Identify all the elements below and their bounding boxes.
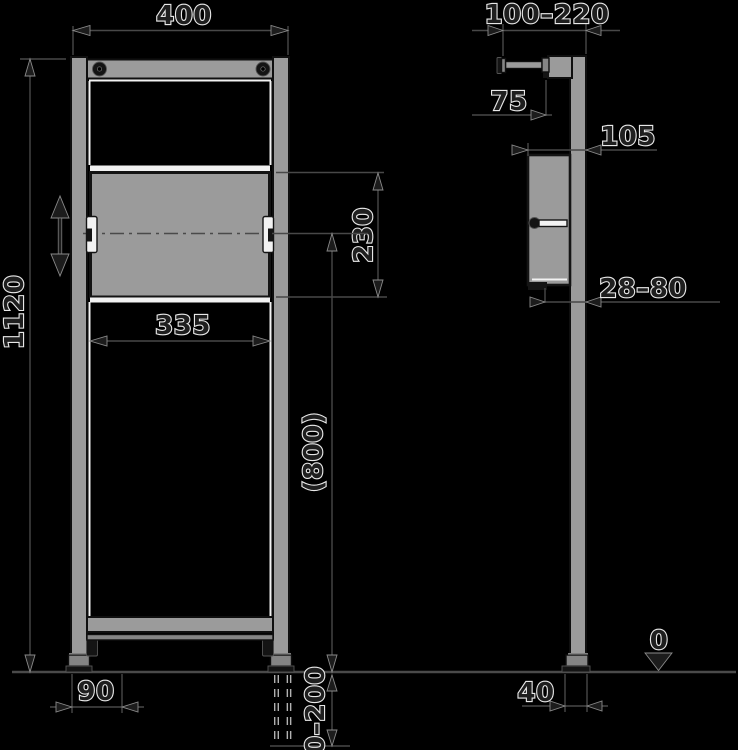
panel-top-highlight	[90, 166, 270, 172]
right-foot	[271, 655, 292, 666]
dim-label-floor-level: 0	[650, 626, 669, 656]
anchor-disc-inner	[502, 59, 506, 73]
top-crossbar	[87, 60, 273, 79]
panel-bottom-highlight	[90, 298, 270, 303]
arrowhead	[587, 701, 602, 711]
side-foot-pad	[562, 666, 590, 672]
dim-label-foot-depth: 40	[517, 678, 554, 708]
arrowhead	[271, 26, 288, 36]
right-screw-center	[261, 67, 265, 71]
front-view	[51, 57, 294, 742]
left-rail	[71, 57, 87, 654]
dim-label-panel-height: 230	[349, 207, 379, 263]
leg-extension-dashes	[277, 675, 290, 742]
arrowhead	[90, 336, 107, 346]
dimension-panel-width: 335	[90, 311, 270, 346]
arrowhead	[373, 280, 383, 297]
anchor-rod	[506, 62, 543, 69]
floor-level-marker-icon	[645, 653, 672, 671]
dimension-wall-distance: 100–220	[472, 0, 620, 56]
arrowhead	[25, 655, 35, 672]
right-leg-lock-knob	[263, 639, 274, 656]
dim-label-frame-height: 1120	[0, 275, 30, 349]
dim-label-panel-width: 335	[155, 311, 211, 341]
arrowhead	[253, 336, 270, 346]
height-adjust-arrow-icon	[51, 196, 69, 276]
side-foot	[566, 655, 588, 666]
dimension-foot-span: 90	[50, 674, 144, 713]
technical-drawing-canvas: 400 1120 335 230 (800) 90	[0, 0, 738, 750]
right-foot-pad	[268, 666, 294, 672]
bottom-crossbar	[87, 617, 273, 632]
anchor-collar	[542, 58, 549, 72]
dim-label-rear-gap: 28–80	[599, 274, 687, 304]
side-fixing-slot	[539, 220, 567, 227]
side-module-box-bottom-piece	[528, 282, 547, 290]
dim-label-wall-distance: 100–220	[484, 0, 609, 30]
side-top-crossbar	[548, 56, 572, 78]
floor-level-marker: 0	[645, 626, 672, 671]
side-rail	[570, 56, 586, 654]
installation-frame-drawing: 400 1120 335 230 (800) 90	[0, 0, 738, 750]
arrowhead	[586, 145, 601, 155]
dim-label-axis-height: (800)	[299, 412, 329, 493]
left-foot	[69, 655, 90, 666]
bottom-crossbar-lower	[87, 635, 273, 641]
arrowhead	[56, 702, 72, 712]
panel-bracket-left-notch	[87, 229, 93, 242]
arrowhead	[530, 297, 545, 307]
arrowhead	[512, 145, 528, 155]
arrowhead	[327, 234, 337, 252]
dim-label-frame-depth: 105	[600, 122, 656, 152]
mounting-panel	[91, 173, 270, 298]
dimension-anchor-offset: 75	[472, 80, 552, 120]
dimension-frame-height: 1120	[0, 59, 66, 672]
side-view	[497, 56, 590, 672]
panel-bracket-right-notch	[268, 229, 274, 242]
dim-label-leg-extension: 0–200	[301, 666, 331, 750]
left-foot-pad	[66, 666, 92, 672]
dim-label-foot-span: 90	[77, 677, 114, 707]
arrowhead	[373, 173, 383, 190]
left-screw-center	[97, 67, 101, 71]
arrowhead	[73, 26, 90, 36]
wall-anchor-bolt	[497, 58, 549, 74]
dim-label-anchor-offset: 75	[490, 87, 527, 117]
dimension-foot-depth: 40	[517, 674, 608, 712]
arrowhead	[122, 702, 138, 712]
dimension-frame-width: 400	[73, 1, 288, 55]
right-rail	[273, 57, 289, 654]
arrowhead	[25, 59, 35, 76]
dimension-leg-extension: 0–200	[270, 666, 350, 750]
arrowhead	[531, 110, 546, 120]
left-leg-lock-knob	[87, 639, 98, 656]
dim-label-frame-width: 400	[156, 1, 212, 31]
